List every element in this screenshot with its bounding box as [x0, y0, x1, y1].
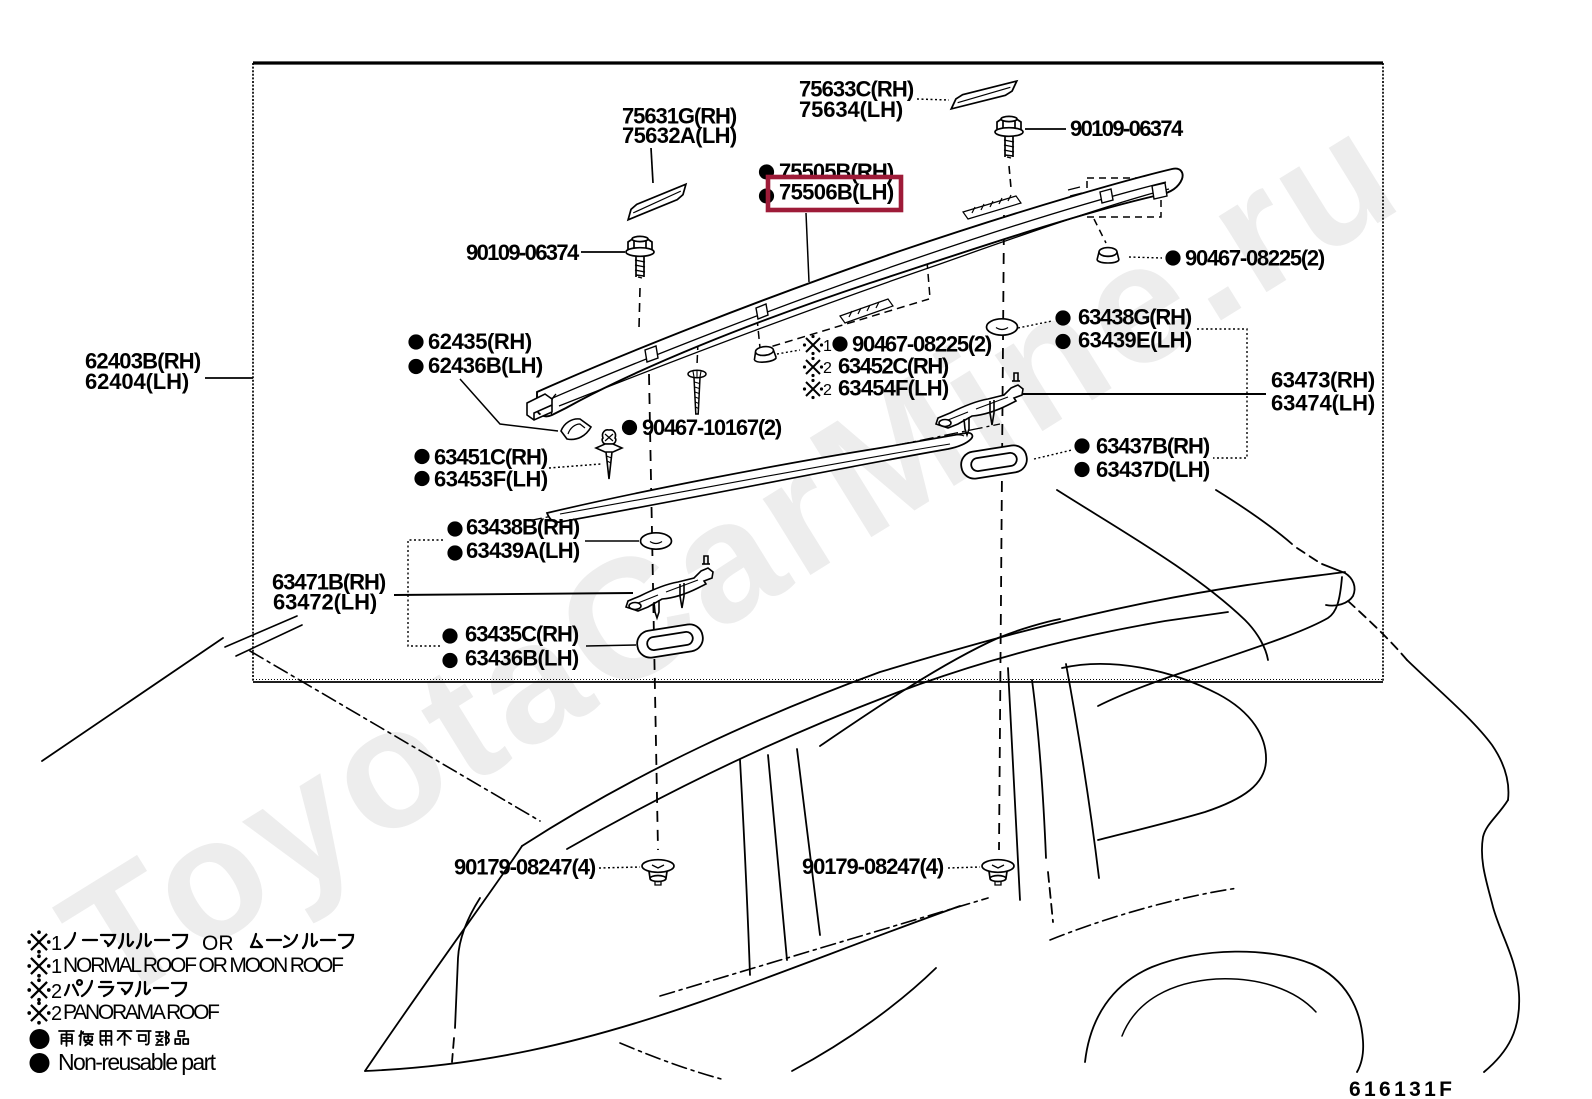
svg-text:1: 1	[51, 956, 62, 978]
svg-text:63439E(LH): 63439E(LH)	[1078, 328, 1192, 353]
svg-text:63436B(LH): 63436B(LH)	[465, 646, 579, 671]
svg-text:1: 1	[51, 933, 62, 955]
svg-text:75632A(LH): 75632A(LH)	[622, 123, 737, 148]
svg-text:Non-reusable part: Non-reusable part	[58, 1049, 217, 1075]
svg-text:90179-08247(4): 90179-08247(4)	[802, 854, 944, 879]
svg-text:616131F: 616131F	[1349, 1078, 1454, 1099]
svg-text:63472(LH): 63472(LH)	[273, 590, 377, 615]
svg-text:2: 2	[823, 360, 832, 377]
svg-text:PANORAMA ROOF: PANORAMA ROOF	[63, 1001, 220, 1024]
svg-text:OR: OR	[202, 932, 234, 955]
svg-text:63438G(RH): 63438G(RH)	[1078, 305, 1192, 330]
svg-text:63437B(RH): 63437B(RH)	[1096, 434, 1210, 459]
svg-text:90109-06374: 90109-06374	[1070, 116, 1184, 141]
svg-text:62435(RH): 62435(RH)	[428, 329, 532, 354]
svg-text:2: 2	[51, 981, 62, 1003]
svg-text:63435C(RH): 63435C(RH)	[465, 622, 579, 647]
svg-text:NORMAL ROOF OR MOON ROOF: NORMAL ROOF OR MOON ROOF	[63, 954, 344, 977]
svg-text:2: 2	[51, 1003, 62, 1025]
svg-text:90109-06374: 90109-06374	[466, 240, 580, 265]
svg-text:62436B(LH): 62436B(LH)	[428, 353, 543, 378]
svg-text:63453F(LH): 63453F(LH)	[434, 467, 548, 492]
svg-text:75506B(LH): 75506B(LH)	[779, 180, 894, 205]
svg-text:2: 2	[823, 382, 832, 399]
svg-text:75634(LH): 75634(LH)	[799, 97, 903, 122]
svg-text:63474(LH): 63474(LH)	[1271, 391, 1375, 416]
svg-text:63438B(RH): 63438B(RH)	[466, 515, 580, 540]
svg-text:63473(RH): 63473(RH)	[1271, 368, 1375, 393]
svg-text:63439A(LH): 63439A(LH)	[466, 538, 580, 563]
svg-text:90467-08225(2): 90467-08225(2)	[1185, 246, 1325, 271]
svg-text:1: 1	[823, 338, 832, 355]
svg-text:90467-10167(2): 90467-10167(2)	[642, 415, 782, 440]
svg-text:ToyotaCarMine.ru: ToyotaCarMine.ru	[31, 72, 1430, 1039]
svg-text:63437D(LH): 63437D(LH)	[1096, 457, 1210, 482]
svg-text:62404(LH): 62404(LH)	[85, 369, 189, 394]
svg-text:90179-08247(4): 90179-08247(4)	[454, 855, 596, 880]
svg-text:63454F(LH): 63454F(LH)	[838, 376, 949, 401]
